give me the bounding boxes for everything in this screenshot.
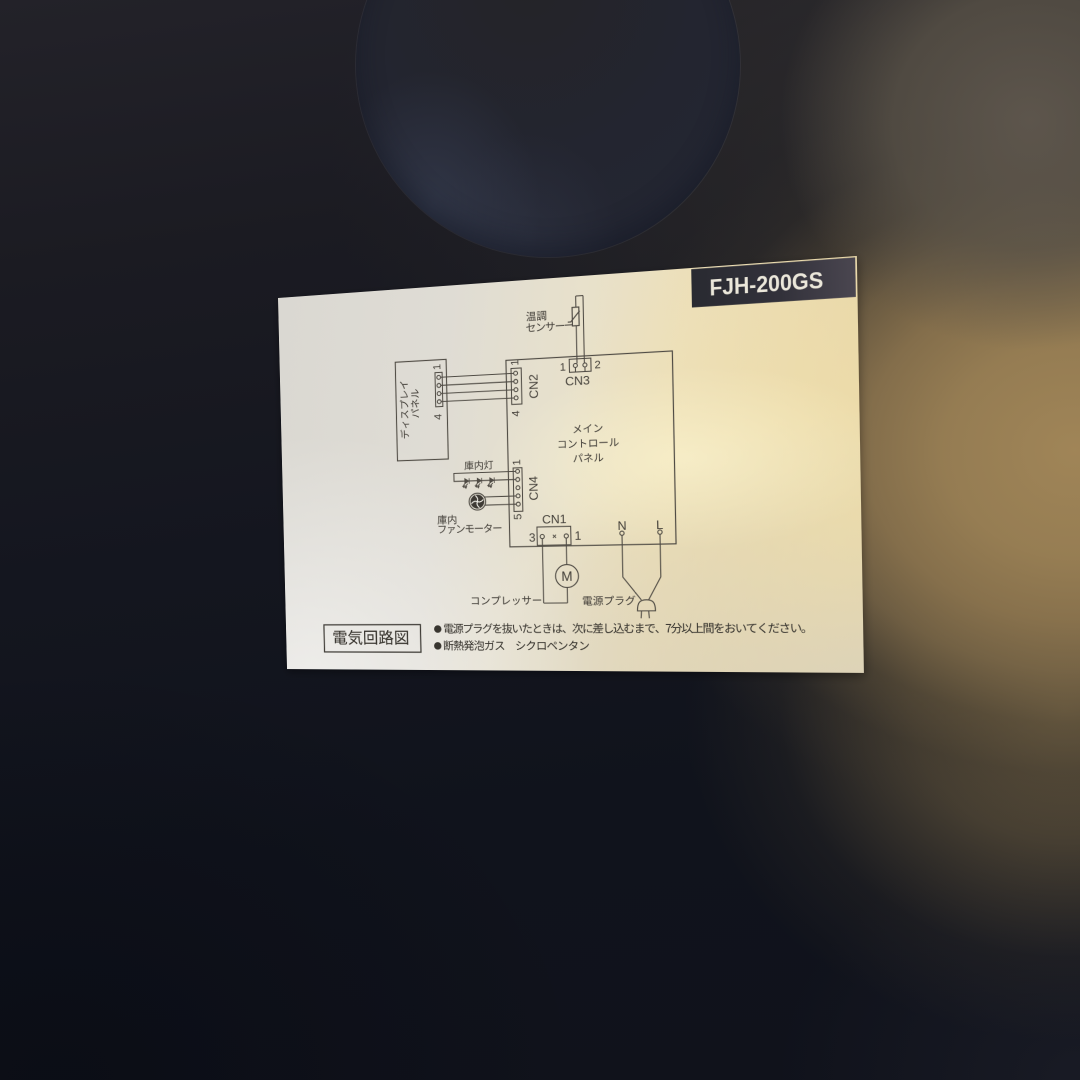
svg-text:1: 1 [575, 530, 582, 543]
svg-text:3: 3 [529, 532, 536, 545]
svg-text:CN4: CN4 [527, 476, 541, 501]
svg-text:M: M [561, 569, 573, 585]
svg-text:CN1: CN1 [542, 513, 567, 527]
svg-text:1: 1 [511, 459, 523, 466]
svg-text:2: 2 [594, 359, 600, 372]
svg-text:CN2: CN2 [528, 374, 542, 399]
svg-text:CN3: CN3 [565, 374, 590, 389]
svg-text:1: 1 [432, 363, 444, 370]
svg-text:5: 5 [513, 513, 525, 520]
svg-text:1: 1 [560, 361, 567, 374]
svg-text:4: 4 [433, 413, 445, 420]
svg-text:4: 4 [511, 410, 523, 417]
